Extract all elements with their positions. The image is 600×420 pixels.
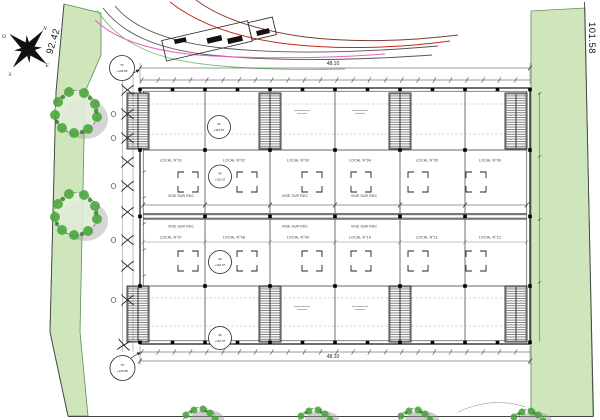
site-plan-canvas: LOCAL N°01 LOCAL N°02 LOCAL N°03 LOCAL N… bbox=[0, 0, 600, 420]
staircase bbox=[259, 286, 281, 342]
survey-circles bbox=[111, 112, 116, 303]
compass-north-label: N bbox=[42, 26, 47, 32]
building bbox=[127, 88, 542, 344]
interior-dimension-lines bbox=[141, 92, 541, 342]
local-unit-label: LOCAL N°02 bbox=[223, 159, 245, 163]
truck-turning-template bbox=[162, 15, 277, 61]
tf-abbr: TF bbox=[120, 63, 124, 67]
compass-west-label: O bbox=[2, 34, 6, 40]
void-label: VIDE SUR RDC bbox=[282, 225, 309, 229]
sf-value: +110.57 bbox=[214, 128, 225, 132]
void-label: VIDE SUR RDC bbox=[351, 225, 378, 229]
void-label: VIDE SUR RDC bbox=[351, 194, 378, 198]
bush bbox=[182, 406, 224, 420]
local-unit-label: LOCAL N°05 bbox=[416, 159, 438, 163]
void-label: VIDE SUR RDC bbox=[168, 194, 195, 198]
staircase bbox=[505, 286, 527, 342]
compass-east-label: E bbox=[44, 63, 49, 69]
local-unit-label: LOCAL N°10 bbox=[349, 236, 371, 240]
local-unit-label: LOCAL N°07 bbox=[160, 236, 182, 240]
local-unit-label: LOCAL N°11 bbox=[416, 236, 438, 240]
sf-value: +110.57 bbox=[215, 178, 226, 182]
local-unit-label: LOCAL N°01 bbox=[160, 159, 182, 163]
staircase bbox=[389, 93, 411, 149]
void-label: VIDE SUR RDC bbox=[282, 194, 309, 198]
total-width-top: 48.10 bbox=[327, 61, 340, 67]
path-gray-outer bbox=[103, 8, 432, 60]
local-unit-label: LOCAL N°08 bbox=[223, 236, 245, 240]
bush bbox=[397, 407, 439, 420]
staircase bbox=[259, 93, 281, 149]
small-annotation-smudges bbox=[294, 110, 368, 310]
sf-value: +110.57 bbox=[215, 339, 226, 343]
sf-level-marker bbox=[209, 327, 232, 350]
tf-abbr: TF bbox=[121, 363, 125, 367]
sf-abbr: SF bbox=[218, 172, 222, 176]
local-unit-label: LOCAL N°06 bbox=[479, 159, 501, 163]
total-width-bottom: 48.10 bbox=[327, 354, 340, 360]
site-plan-viewport: LOCAL N°01 LOCAL N°02 LOCAL N°03 LOCAL N… bbox=[0, 0, 600, 420]
path-brown bbox=[196, 0, 458, 41]
bush bbox=[297, 407, 339, 420]
staircase bbox=[505, 93, 527, 149]
sf-abbr: SF bbox=[218, 257, 222, 261]
sf-value: +110.57 bbox=[215, 263, 226, 267]
sf-abbr: SF bbox=[218, 333, 222, 337]
staircase bbox=[389, 286, 411, 342]
path-gray-inner bbox=[115, 6, 438, 52]
local-unit-label: LOCAL N°12 bbox=[479, 236, 501, 240]
local-unit-label: LOCAL N°03 bbox=[287, 159, 309, 163]
local-unit-label: LOCAL N°04 bbox=[349, 159, 371, 163]
tf-level-marker bbox=[110, 356, 135, 381]
sf-level-marker bbox=[208, 116, 231, 139]
staircase bbox=[127, 286, 149, 342]
void-label: VIDE SUR RDC bbox=[168, 225, 195, 229]
tf-value: +106.85 bbox=[117, 369, 128, 373]
sf-level-marker bbox=[209, 251, 232, 274]
hedge-guide-line bbox=[458, 403, 526, 412]
tf-value: +106.85 bbox=[117, 69, 128, 73]
right-boundary-length: 101.58 bbox=[586, 22, 597, 54]
sf-abbr: SF bbox=[217, 122, 221, 126]
local-unit-label: LOCAL N°09 bbox=[287, 236, 309, 240]
compass-south-label: S bbox=[9, 72, 12, 78]
hedge-bushes bbox=[182, 403, 552, 420]
tf-level-marker bbox=[110, 56, 135, 81]
staircases bbox=[127, 93, 527, 342]
sf-level-marker bbox=[209, 165, 232, 188]
